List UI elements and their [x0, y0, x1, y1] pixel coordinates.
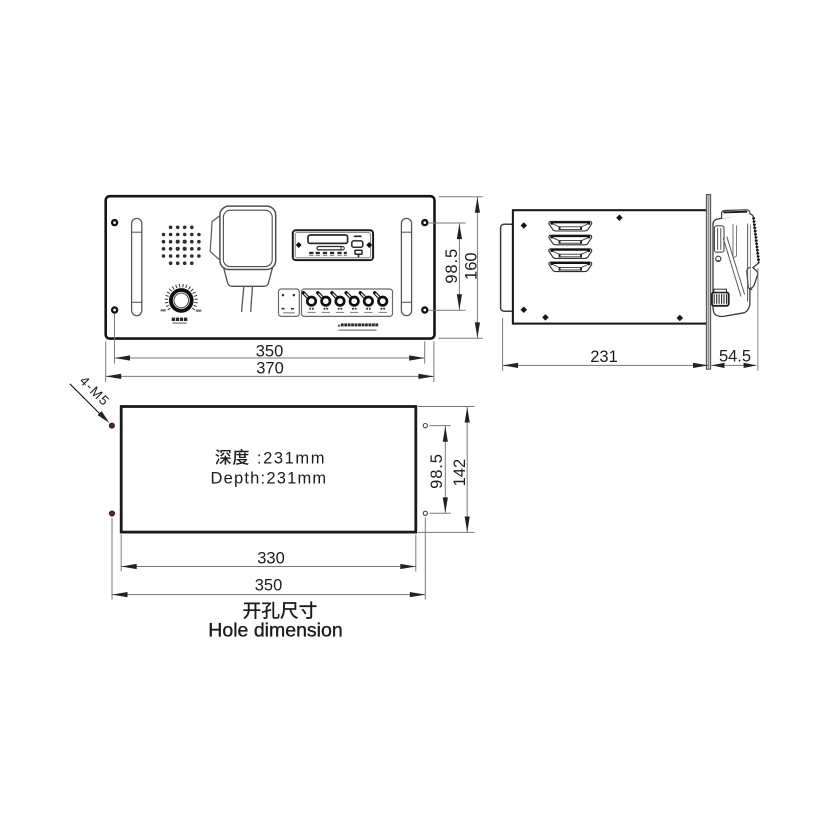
svg-text:Hole dimension: Hole dimension — [208, 620, 342, 642]
svg-text:370: 370 — [256, 360, 284, 378]
svg-text:142: 142 — [451, 459, 469, 487]
svg-text:98.5: 98.5 — [428, 453, 446, 489]
svg-text:160: 160 — [463, 252, 481, 280]
svg-text:350: 350 — [255, 577, 283, 595]
svg-text:330: 330 — [257, 549, 285, 567]
svg-text:350: 350 — [256, 342, 284, 360]
svg-text:54.5: 54.5 — [719, 347, 751, 365]
svg-text:98.5: 98.5 — [443, 248, 461, 284]
svg-text:Depth:231mm: Depth:231mm — [211, 469, 328, 487]
svg-text:231: 231 — [590, 348, 618, 366]
svg-text::231mm: :231mm — [257, 450, 326, 468]
